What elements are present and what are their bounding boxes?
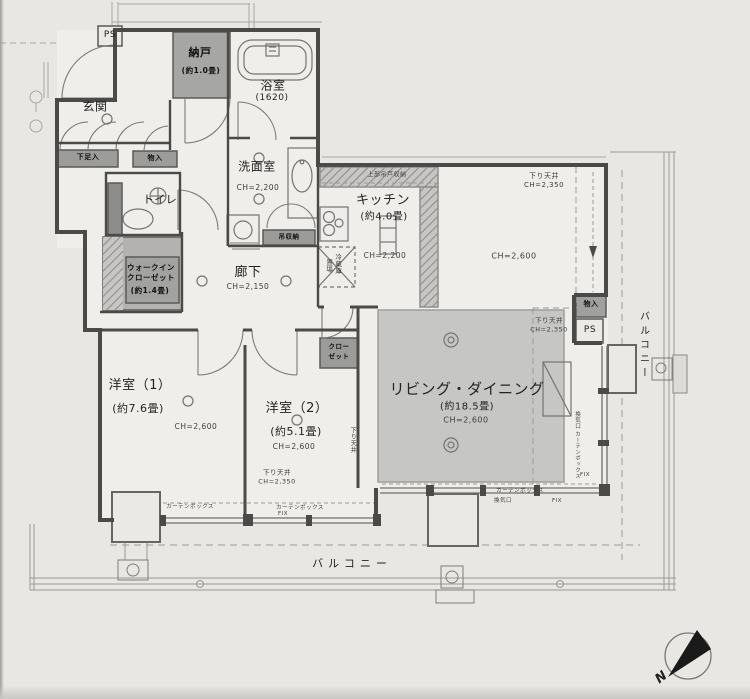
room-size-bedroom2: (約5.1畳) <box>270 426 322 438</box>
lowered-ceiling-bed2-vertical: 下り天井 <box>349 427 356 453</box>
lowered-ceiling-right: 下り天井 <box>535 317 563 324</box>
room-label-washroom: 洗面室 <box>238 160 276 173</box>
room-label-nando: 納戸 <box>189 47 212 59</box>
room-label-bedroom1: 洋室（1） <box>109 379 172 393</box>
room-label-hallway: 廊下 <box>234 266 261 280</box>
closet-label-line2: ゼット <box>329 353 350 360</box>
ch2350-bottom: CH=2,350 <box>258 478 295 485</box>
toilet-shelf-strip <box>108 183 122 235</box>
fix-right: FIX <box>580 472 590 478</box>
vent-right-vertical: 換気口 <box>574 411 580 429</box>
shoe-cabinet-label: 下足入 <box>77 154 100 162</box>
entry-closet-label: 物入 <box>148 155 163 163</box>
fridge-space-label-2: 置場 <box>324 259 331 273</box>
room-label-toilet: トイレ <box>143 194 178 206</box>
lowered-ceiling-bottom: 下り天井 <box>263 469 291 476</box>
stove <box>320 207 348 241</box>
ps-label-top: PS <box>104 31 116 41</box>
room-size-bedroom1: (約7.6畳) <box>112 403 164 415</box>
ch-washroom: CH=2,200 <box>237 184 280 192</box>
ch-bedroom1: CH=2,600 <box>175 423 218 431</box>
curtain-box-bed1: カーテンボックス <box>166 504 214 510</box>
room-size-living: (約18.5畳) <box>440 402 494 413</box>
room-label-living: リビング・ダイニング <box>389 381 544 398</box>
right-closet-label: 物入 <box>584 301 599 309</box>
room-size-bathroom: (1620) <box>256 94 289 104</box>
curtain-box-living: カーテンボックス <box>496 488 544 494</box>
fix-bed2: FIX <box>278 511 288 517</box>
floor-plan-page: PS 納戸 (約1.0畳) 浴室 (1620) 玄関 下足入 物入 トイレ 洗面… <box>0 0 750 699</box>
ch-living: CH=2,600 <box>443 417 488 426</box>
wic-label-line2: クローゼット <box>127 274 175 282</box>
hanging-storage-label: 吊収納 <box>279 233 300 240</box>
wic-label-line1: ウォークイン <box>127 264 175 272</box>
room-label-kitchen: キッチン <box>356 194 410 208</box>
lowered-ceiling-topright: 下り天井 <box>529 173 559 181</box>
fridge-space-label-1: 冷蔵庫 <box>333 254 340 275</box>
balcony-label-bottom: バルコニー <box>312 558 392 570</box>
room-label-genkan: 玄関 <box>82 100 107 113</box>
wic-size: (約1.4畳) <box>131 287 170 295</box>
ch2350-right: CH=2,350 <box>530 326 567 333</box>
room-size-nando: (約1.0畳) <box>182 67 221 75</box>
kitchen-upper-storage-label: 上部吊戸収納 <box>367 173 406 180</box>
ch2350-topright: CH=2,350 <box>524 182 564 190</box>
balcony-label-right: バルコニー <box>638 311 649 381</box>
vent-living: 換気口 <box>494 498 512 504</box>
room-size-kitchen: (約4.0畳) <box>360 212 407 223</box>
fix-living: FIX <box>552 498 562 504</box>
ps-label-right: PS <box>584 326 596 336</box>
compass <box>665 630 711 679</box>
ch-kitchen: CH=2,200 <box>364 252 407 260</box>
kitchen-side-hatch <box>420 187 438 307</box>
room-label-bathroom: 浴室 <box>260 79 285 92</box>
ch2600-living-upper: CH=2,600 <box>491 253 536 262</box>
closet-label-line1: クロー <box>329 343 350 350</box>
room-label-bedroom2: 洋室（2） <box>266 402 329 416</box>
ch-hallway: CH=2,150 <box>227 283 270 291</box>
hatch-box-left <box>118 542 148 580</box>
ch-bedroom2: CH=2,600 <box>273 443 316 451</box>
